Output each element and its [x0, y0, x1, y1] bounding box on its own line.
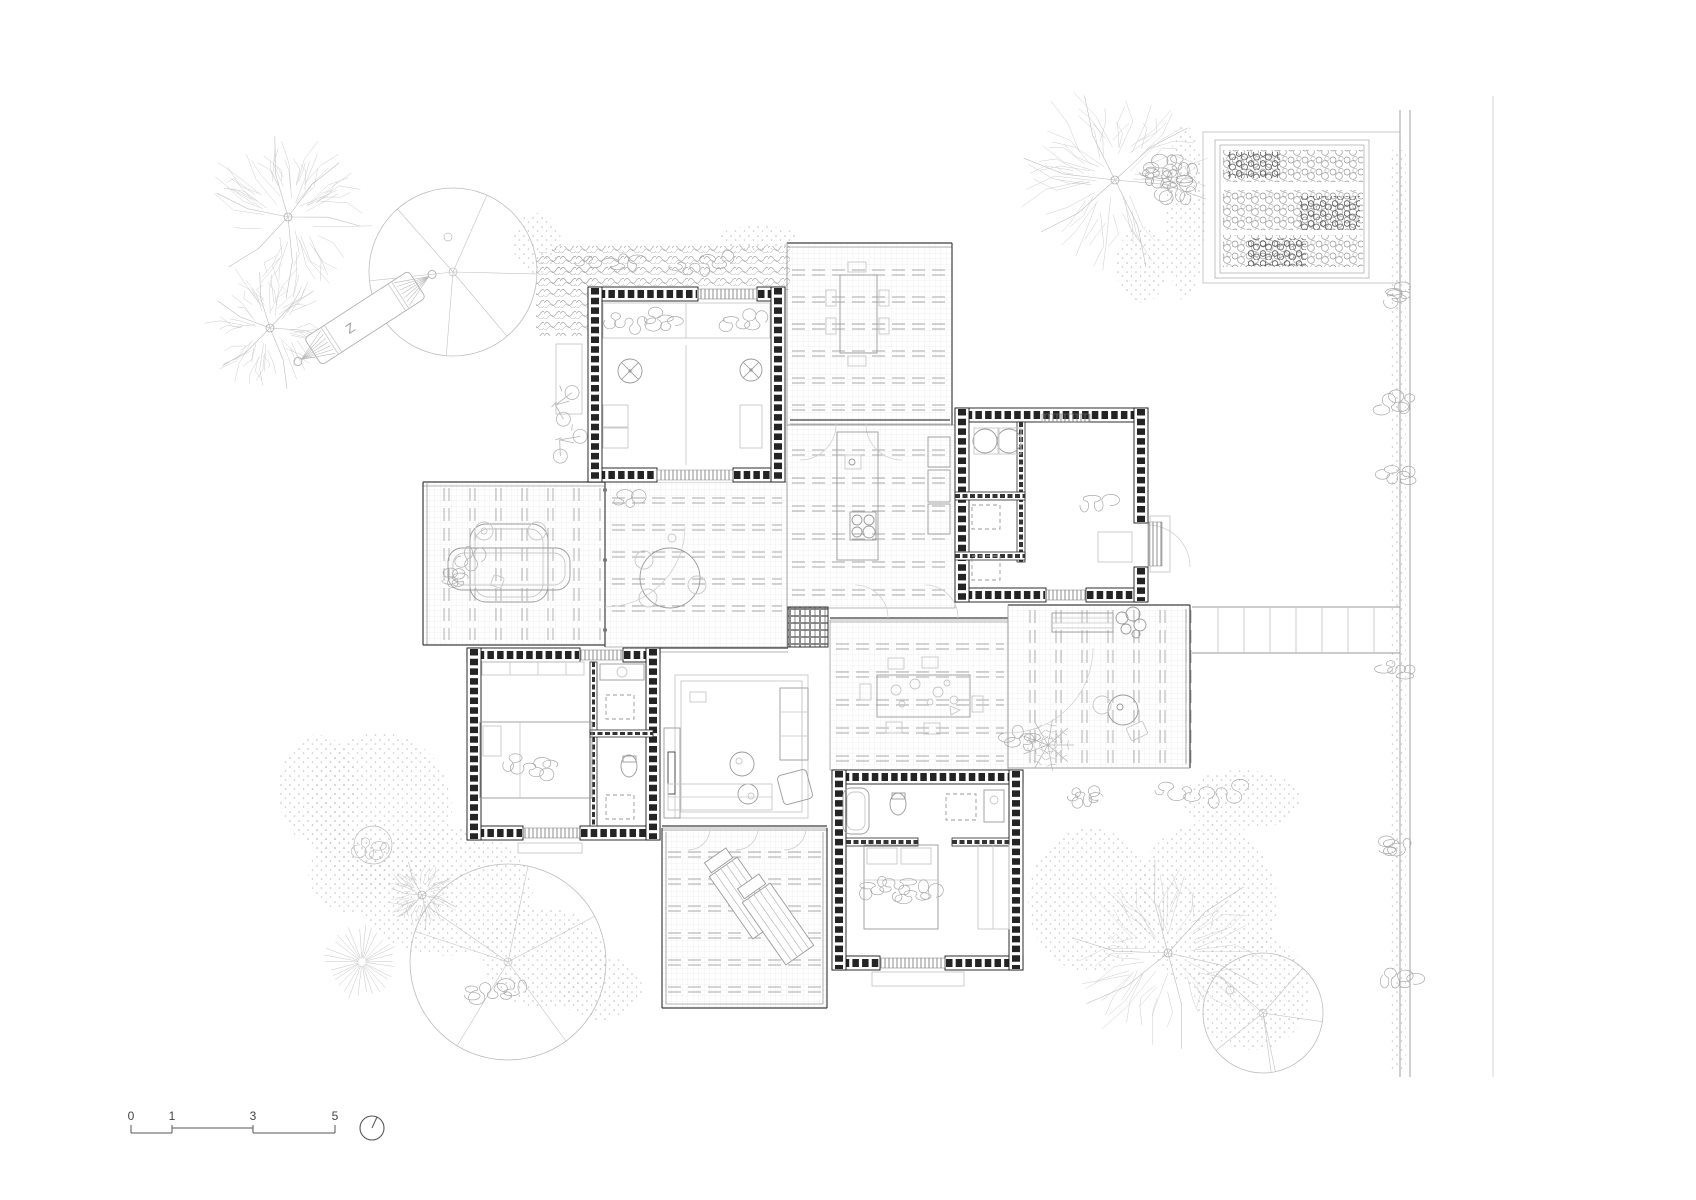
- site-plan-drawing: Z 0135: [0, 0, 1696, 1200]
- deck-floor: [830, 620, 1008, 770]
- room-floor: [955, 408, 1148, 602]
- entry-mat: [580, 650, 623, 660]
- furniture-rect: [675, 675, 808, 818]
- hinge-dot: [603, 628, 607, 632]
- stipple-patch: [1182, 770, 1302, 830]
- plan-line: [324, 955, 359, 961]
- annotation-layer: 0135: [128, 1109, 384, 1140]
- garden-flower-dense: [1248, 238, 1306, 266]
- scribble: [1067, 786, 1102, 808]
- stipple-patch: [1116, 227, 1168, 303]
- plan-line: [364, 965, 380, 992]
- scale-bar: 0135: [128, 1109, 339, 1133]
- entry-mat: [880, 958, 945, 968]
- tree-canopy: [369, 188, 537, 356]
- entry-mat: [1042, 414, 1090, 422]
- entry-mat: [1046, 590, 1086, 600]
- plan-line: [446, 272, 453, 356]
- scale-label: 0: [128, 1109, 135, 1123]
- bicycle: [547, 381, 581, 428]
- hedge: [536, 252, 594, 336]
- plan-line: [372, 1117, 377, 1128]
- hinge-dot: [603, 558, 607, 562]
- stipple-patch: [278, 735, 358, 845]
- room-floor: [832, 770, 1023, 970]
- plan-line: [360, 929, 362, 958]
- furniture-rect: [780, 688, 808, 760]
- plan-line: [364, 933, 377, 959]
- deck-floor: [787, 243, 952, 425]
- furniture-rect: [664, 728, 680, 818]
- tree-branchy: [214, 137, 372, 299]
- entry-mat: [523, 828, 580, 838]
- plan-line: [326, 948, 358, 960]
- wall: [1134, 408, 1148, 523]
- plan-line: [365, 964, 388, 979]
- wall: [588, 287, 602, 482]
- tree-fruit-dot: [444, 233, 452, 241]
- deck-floor: [1008, 605, 1190, 768]
- scale-label: 5: [332, 1109, 339, 1123]
- fence-vegetation: [1390, 150, 1406, 1070]
- garden-flower-dense: [1228, 152, 1280, 178]
- plan-line: [365, 944, 390, 960]
- north-symbol: [360, 1116, 384, 1140]
- tree-branchy: [204, 264, 331, 389]
- stipple-patch: [558, 956, 642, 1020]
- wall: [646, 648, 660, 840]
- deck-floor: [787, 425, 955, 608]
- chimney: [788, 607, 828, 647]
- site-plan-page: Z 0135: [0, 0, 1696, 1200]
- plan-line: [363, 928, 372, 959]
- plan-line: [453, 195, 487, 272]
- stipple-patch: [1165, 125, 1205, 301]
- wall: [771, 287, 785, 482]
- plan-line: [358, 966, 362, 996]
- furniture-rect: [690, 692, 706, 702]
- plan-line: [362, 925, 365, 958]
- plan-line: [457, 962, 508, 1046]
- furniture-rect: [872, 972, 964, 986]
- plan-line: [325, 961, 358, 962]
- plan-line: [365, 965, 386, 988]
- furniture-rect: [681, 681, 802, 812]
- scale-label: 1: [169, 1109, 176, 1123]
- scale-label: 3: [250, 1109, 257, 1123]
- hinge-dot: [603, 488, 607, 492]
- plan-line: [453, 272, 507, 336]
- plan-line: [349, 966, 361, 999]
- room-floor: [467, 648, 660, 840]
- furniture-circle: [736, 758, 742, 764]
- plan-line: [397, 209, 453, 272]
- bicycle: [545, 421, 590, 466]
- wall: [955, 408, 969, 602]
- garden-flower-dense: [1300, 196, 1360, 230]
- hammock: Z: [286, 259, 444, 377]
- stipple-patch: [308, 832, 388, 912]
- wall: [467, 648, 481, 840]
- furniture-circle: [748, 793, 754, 799]
- furniture-rect: [668, 752, 675, 794]
- deck-floor: [423, 482, 605, 645]
- plan-line: [331, 963, 358, 970]
- glazed-door: [657, 470, 733, 480]
- plan-line: [366, 954, 393, 961]
- plan-line: [453, 272, 537, 274]
- furniture-circle: [738, 784, 758, 804]
- entry-mat: [698, 289, 757, 299]
- furniture-rect: [518, 843, 582, 853]
- furniture-circle: [730, 752, 754, 776]
